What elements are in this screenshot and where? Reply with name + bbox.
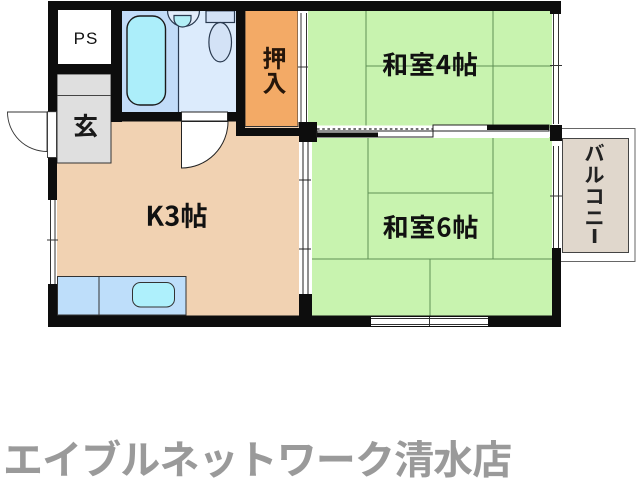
svg-text:PS: PS bbox=[74, 29, 99, 48]
